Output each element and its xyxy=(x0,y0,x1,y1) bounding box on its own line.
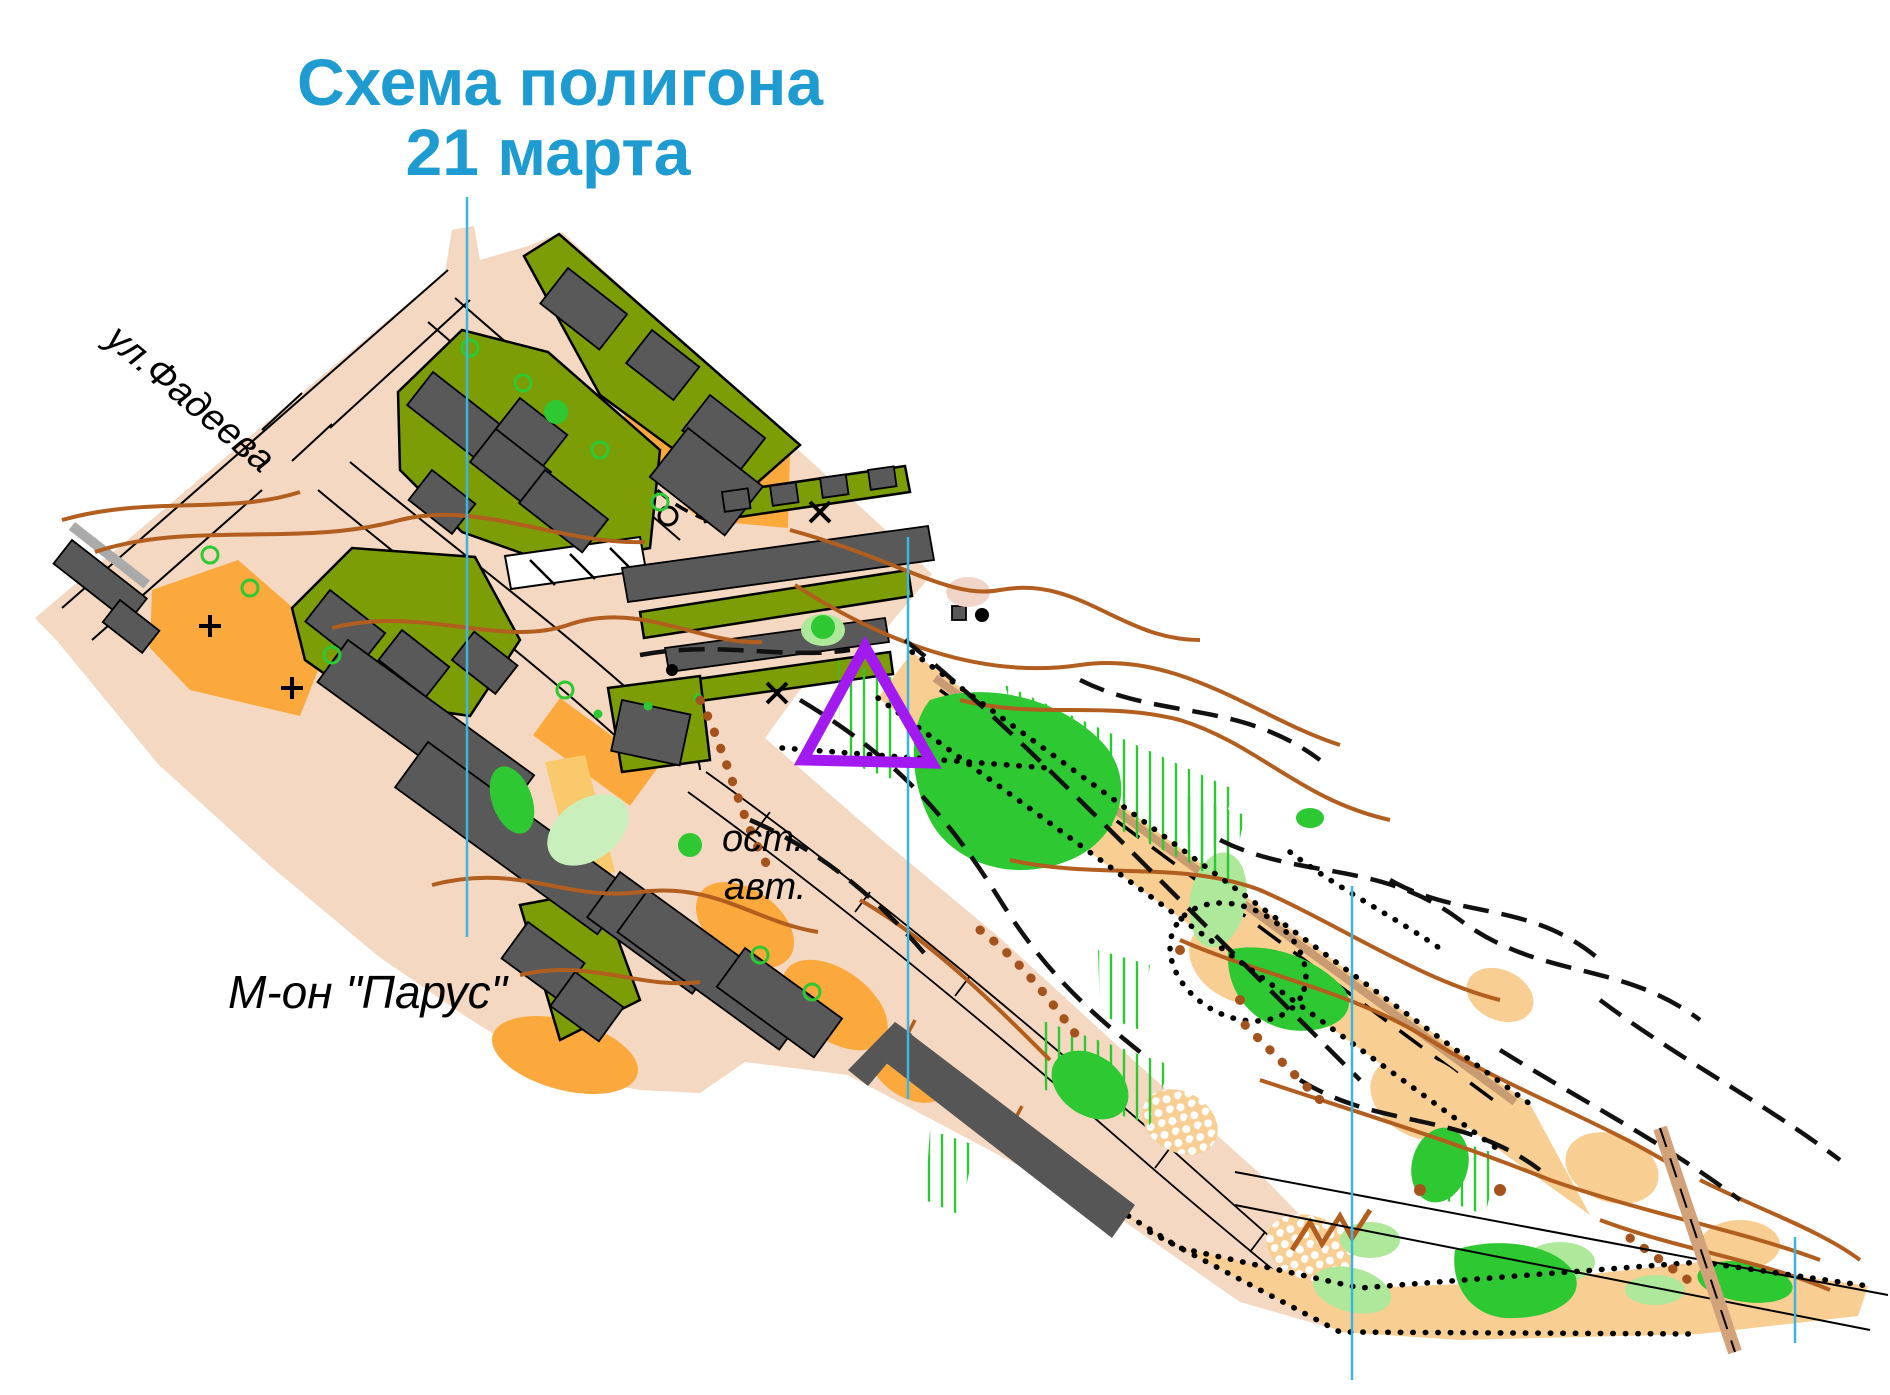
district-label: М-он "Парус" xyxy=(228,966,510,1018)
page-title-line1: Схема полигона xyxy=(297,45,824,119)
street-label: ул.Фадеева xyxy=(96,315,283,481)
map-canvas: Схема полигона 21 марта ул.Фадеева ост. … xyxy=(0,0,1890,1395)
bus-stop-label-line2: авт. xyxy=(724,866,806,908)
schema-page: Схема полигона 21 марта ул.Фадеева ост. … xyxy=(0,0,1890,1395)
bus-stop-label-line1: ост. xyxy=(722,818,804,860)
page-title-line2: 21 марта xyxy=(406,115,692,189)
